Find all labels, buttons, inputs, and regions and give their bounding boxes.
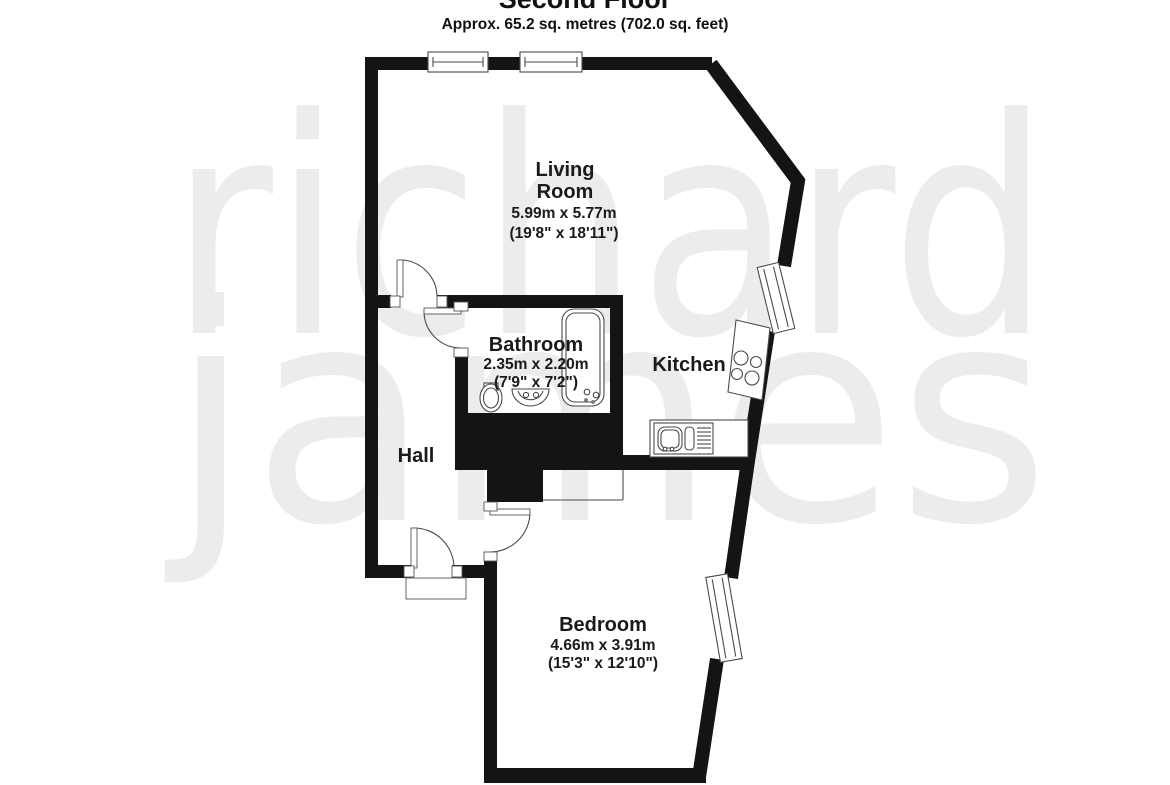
plan-subtitle: Approx. 65.2 sq. metres (702.0 sq. feet) (442, 16, 729, 33)
wall-bathroom-west (455, 350, 468, 413)
jamb (454, 348, 468, 357)
plan-title: Second Floor (499, 0, 672, 14)
jamb (484, 502, 497, 511)
label-bathroom-metric: 2.35m x 2.20m (483, 356, 588, 373)
window-living-room-2 (520, 52, 582, 72)
jamb (437, 296, 447, 307)
jamb (404, 566, 414, 577)
hob-burner (732, 369, 743, 380)
watermark: richard james (161, 55, 1050, 591)
floorplan-page: richard james Second Floor Approx. 65.2 … (0, 0, 1170, 785)
label-kitchen: Kitchen (652, 354, 725, 376)
wall-bedroom-bottom (484, 768, 706, 783)
hob-burner (751, 357, 762, 368)
wall-diagonal-bedroom (699, 659, 717, 777)
label-bedroom: Bedroom (559, 614, 647, 636)
label-bedroom-imperial: (15'3" x 12'10") (548, 655, 658, 672)
label-bathroom-imperial: (7'9" x 7'2") (494, 374, 578, 391)
window-living-room-1 (428, 52, 488, 72)
jamb (484, 552, 497, 561)
label-living-room-imperial: (19'8" x 18'11") (509, 225, 618, 242)
label-bedroom-metric: 4.66m x 3.91m (550, 637, 655, 654)
jamb (454, 302, 468, 311)
hob-burner (745, 371, 759, 385)
label-bathroom: Bathroom (489, 334, 583, 356)
wall-livingroom-hall-stub (378, 295, 391, 308)
label-living-room-1: Living (536, 159, 595, 181)
kitchen-counter-angled (728, 320, 770, 400)
wall-bedroom-left (484, 553, 497, 783)
label-living-room-2: Room (537, 181, 594, 203)
label-hall: Hall (398, 445, 435, 467)
jamb (390, 296, 400, 307)
hob-burner (734, 351, 748, 365)
entry-step (406, 578, 466, 599)
wall-bathroom-east (610, 308, 623, 413)
label-living-room-metric: 5.99m x 5.77m (511, 205, 616, 222)
jamb (452, 566, 462, 577)
kitchen-sink-unit (650, 420, 748, 457)
floor-plan-canvas: richard james Second Floor Approx. 65.2 … (0, 0, 1170, 785)
wall-left (365, 57, 378, 578)
